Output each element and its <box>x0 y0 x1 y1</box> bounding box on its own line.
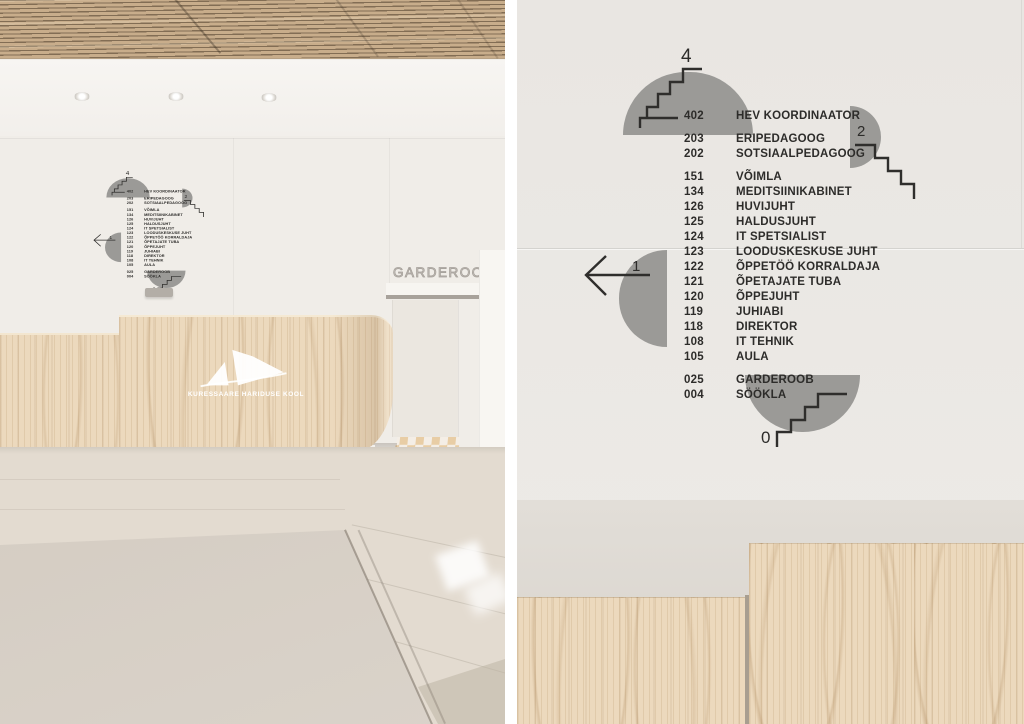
stairs-base-line <box>640 118 678 128</box>
recessed-downlight <box>74 92 90 101</box>
wall-floor-shadow <box>0 447 505 454</box>
photo-lobby-reception: 4 2 1 0 402HEV KOORDINAATOR203ER <box>0 0 505 724</box>
wall-dispenser <box>145 288 173 297</box>
grout-line <box>0 509 345 510</box>
wood-panel-right <box>749 543 1024 724</box>
stairs-and-arrow-icons <box>91 170 205 295</box>
wall-seam <box>233 138 234 318</box>
wood-panel-left <box>517 597 745 724</box>
wayfinding-sign: 4 2 1 0 402HEV KOORDINAATOR203ER <box>91 170 205 295</box>
stairs-base-line <box>112 192 125 195</box>
floor-number-2: 2 <box>857 124 865 139</box>
niche-edge <box>458 300 459 437</box>
wayfinding-sign: 4 2 1 0 402HEV KOORDINAATOR203ER <box>577 45 917 455</box>
floor-number-1: 1 <box>109 235 112 240</box>
stairs-down-icon <box>184 201 204 217</box>
school-logo-text: KURESSAARE HARIDUSE KOOL <box>186 391 306 398</box>
stairs-down-icon <box>647 69 702 118</box>
recessed-downlight <box>168 92 184 101</box>
wall-seam <box>0 138 505 139</box>
recessed-downlight <box>261 93 277 102</box>
corner-wall <box>479 250 505 447</box>
ceiling-seam <box>452 0 498 59</box>
two-photo-collage: 4 2 1 0 402HEV KOORDINAATOR203ER <box>0 0 1024 724</box>
floor-number-2: 2 <box>185 194 188 199</box>
stairs-down-icon <box>855 145 914 199</box>
stairs-and-arrow-icons <box>577 45 917 455</box>
stairs-down-icon <box>114 177 132 192</box>
mini-sign-mount: 4 2 1 0 402HEV KOORDINAATOR203ER <box>91 170 205 295</box>
wall-seam <box>389 138 390 285</box>
ceiling-seam <box>168 0 221 54</box>
floor-number-0: 0 <box>761 429 770 446</box>
smooth-floor-area <box>0 447 505 724</box>
floor-number-1: 1 <box>632 259 640 274</box>
stairs-up-icon <box>777 394 847 447</box>
wall-seam <box>1021 0 1022 248</box>
ceiling-seam <box>330 0 379 57</box>
grout-line <box>0 479 340 480</box>
wood-slat-ceiling <box>0 0 505 59</box>
garderoob-niche <box>392 300 458 437</box>
side-counter <box>0 333 119 447</box>
lobby-floor <box>0 447 505 724</box>
photo-sign-closeup: 4 2 1 0 402HEV KOORDINAATOR203ER <box>517 0 1024 724</box>
floor-number-4: 4 <box>126 171 130 177</box>
school-logo-bird-icon <box>196 348 291 390</box>
floor-number-4: 4 <box>681 47 692 66</box>
